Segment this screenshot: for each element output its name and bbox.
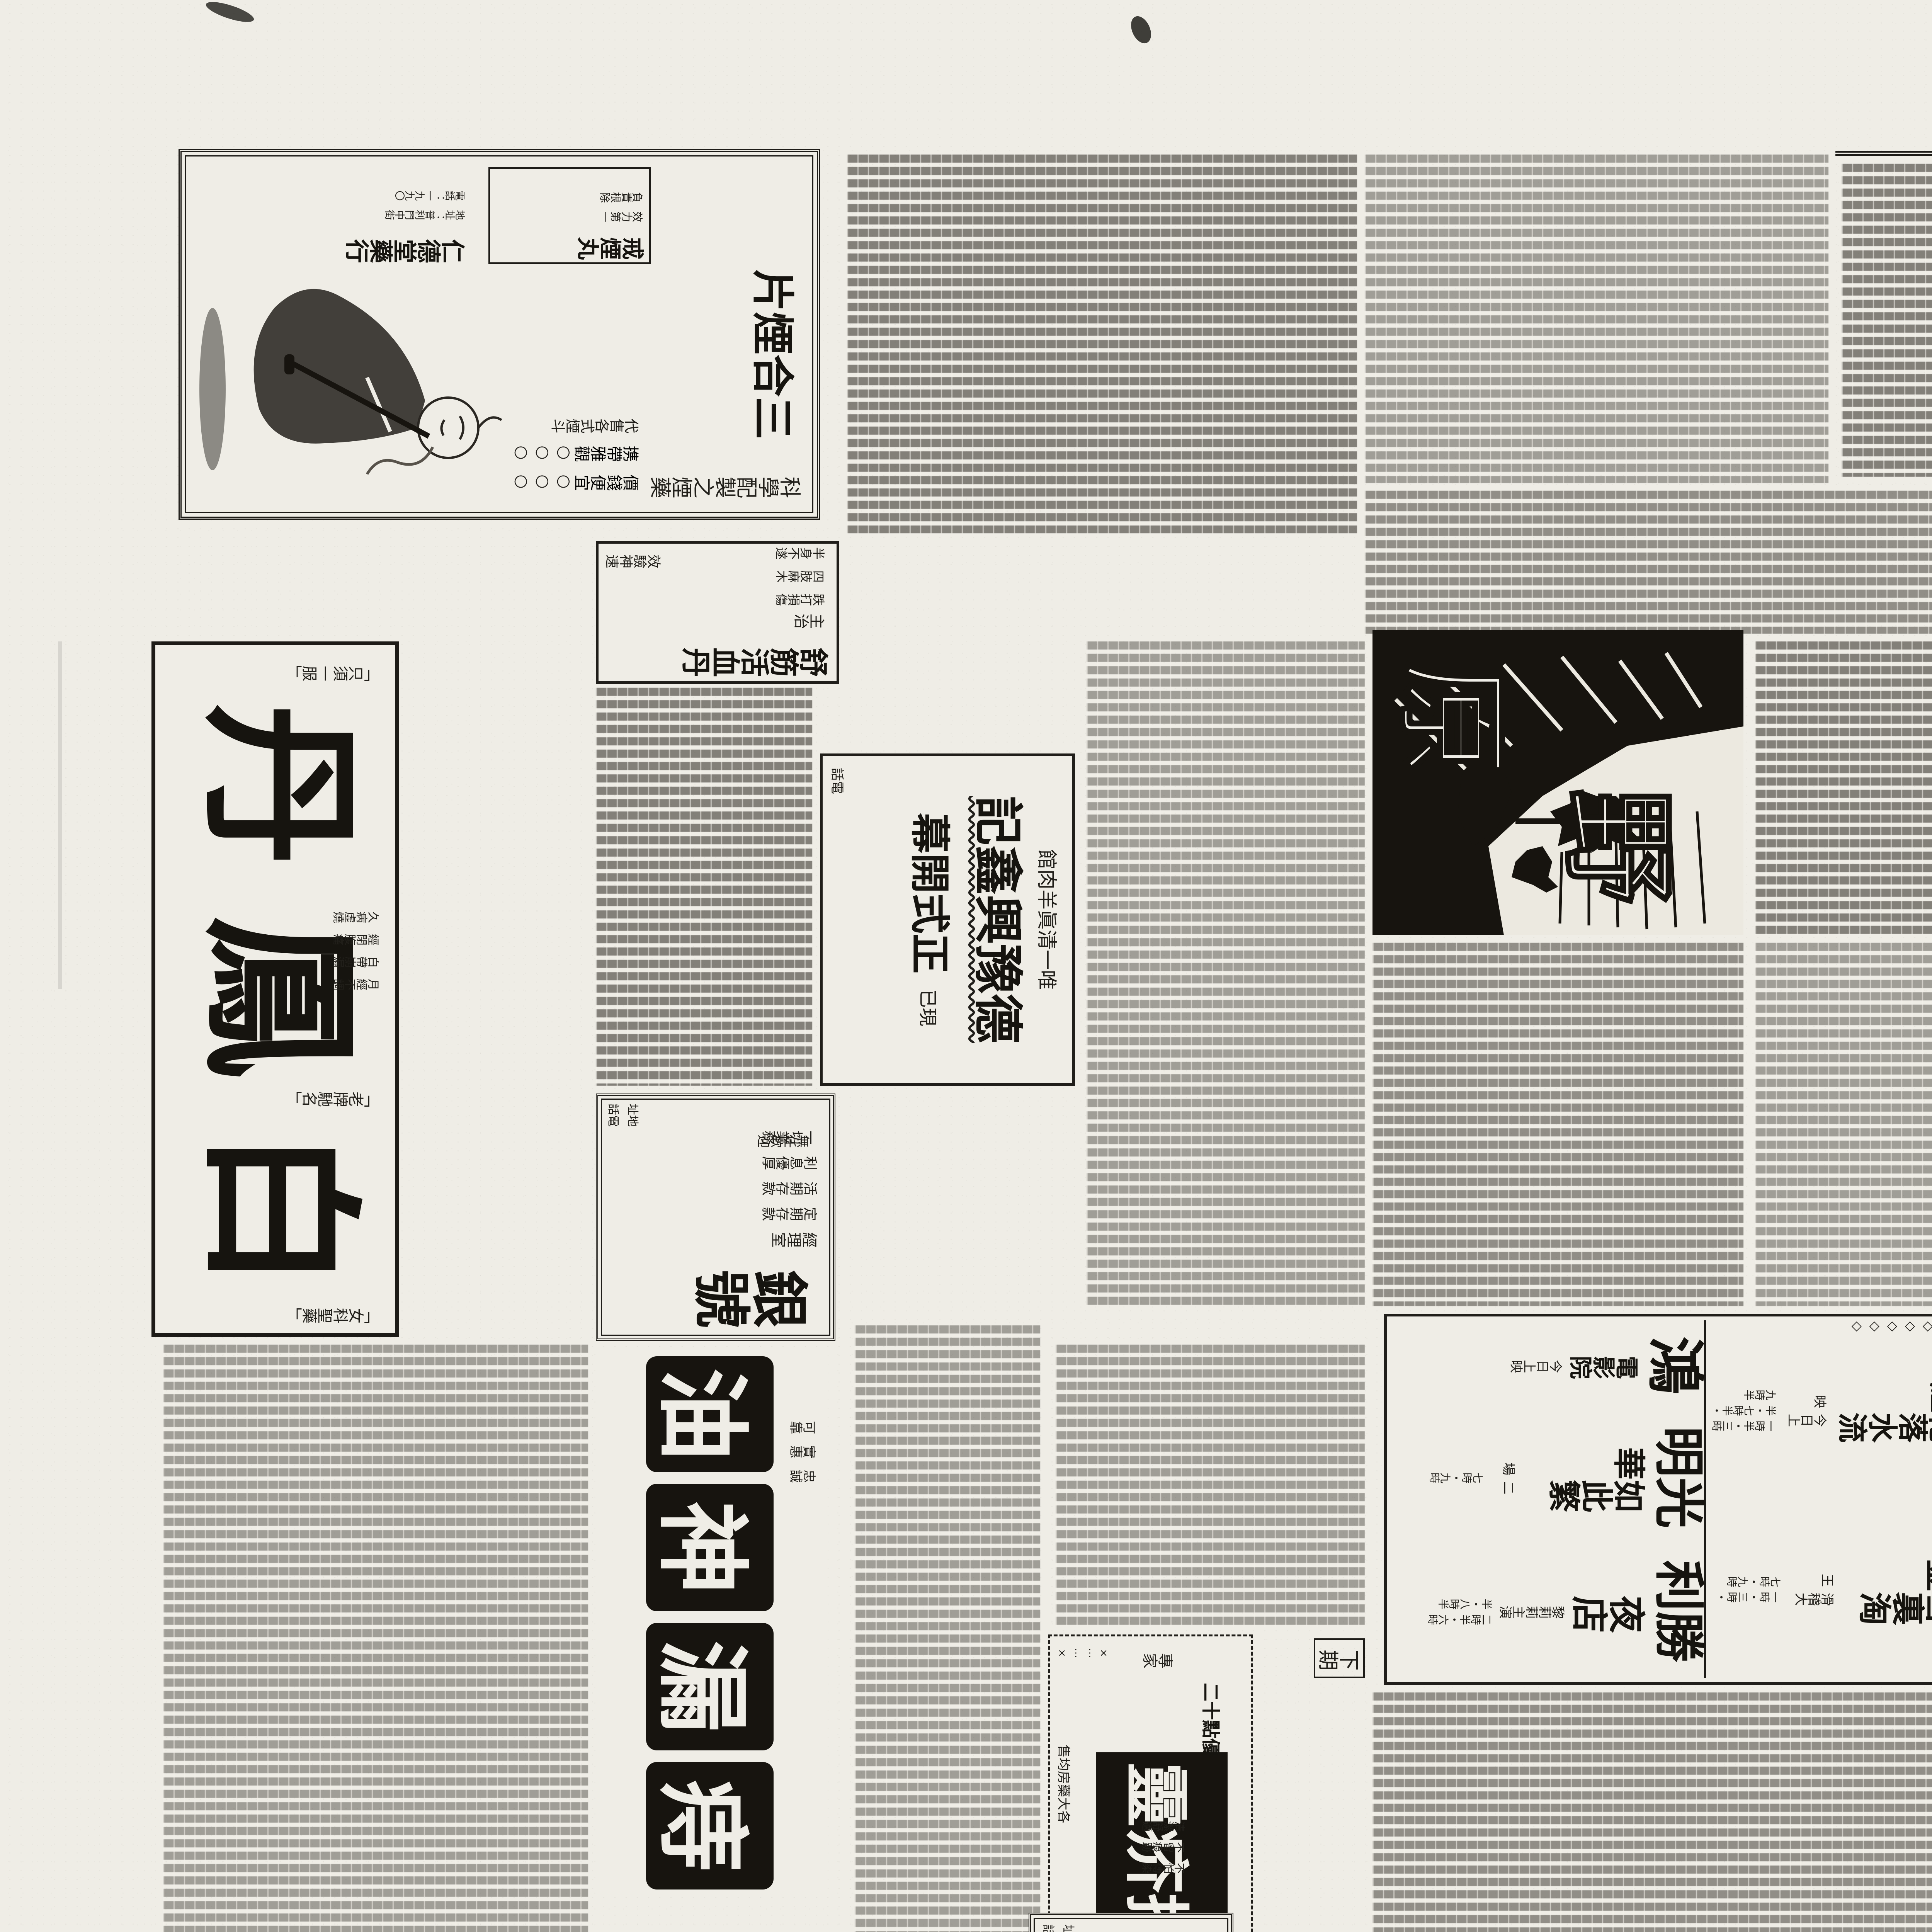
- bank-office: 經理室: [771, 1227, 818, 1250]
- cinema-entry: 鴻 電影院 今日上映: [1403, 1336, 1704, 1394]
- cinema-entry: 勝利 夜店 黎莉莉主演 二時半・六時半・八時半: [1403, 1560, 1704, 1662]
- zhilou-slogan: 忠誠: [790, 1466, 816, 1485]
- seal-char-lou: 漏: [646, 1623, 774, 1750]
- restaurant-tel-label: 電話: [829, 768, 848, 794]
- seal-char-zhi: 痔: [646, 1762, 774, 1889]
- barbershop-ad: 萬國理髮館 設備衛生 房間寬大 電燙火燙 奶油花水 手藝精良 流行摩登 式樣新頴…: [1029, 1913, 1233, 1932]
- restaurant-status: 正式開幕: [910, 813, 950, 974]
- wilderness-char-left: 原: [1384, 661, 1520, 777]
- shujin-symptom: 半身不遂: [776, 544, 825, 561]
- bank-item: 活期存款: [762, 1177, 818, 1197]
- pill-name: 戒煙丸: [577, 235, 645, 258]
- tobacco-slogan: 價錢便宜○○○: [510, 470, 639, 493]
- next-period-label: 下期: [1314, 1638, 1365, 1678]
- film-title: 花落水流紅: [1834, 1379, 1932, 1440]
- barber-tel: 二六三二號：電話: [1040, 1924, 1058, 1932]
- bank-item: 利息優厚: [762, 1151, 818, 1172]
- seal-char-you: 油: [646, 1356, 774, 1472]
- film-note: 黎莉莉主演: [1499, 1602, 1565, 1621]
- store-name: 仁德堂藥行: [345, 237, 465, 261]
- barber-address: 經二路靑年會兩鄰：地址: [1060, 1924, 1078, 1932]
- bank-item: 定期存款: [762, 1202, 818, 1223]
- wilderness-woodcut: 野 原 野 原: [1372, 630, 1743, 935]
- baifengdan-symptom: 經閉腹痛: [333, 930, 379, 947]
- tobacco-kicker: 科學配製之煙藥: [650, 470, 801, 501]
- pill-sub-ad: 戒煙丸 效力第一 負責根除: [488, 167, 651, 264]
- baifengdan-symptom: 月經不調: [333, 975, 379, 992]
- diamond-ornament: ◇◇◇◇◇◇◇◇◇: [1847, 1319, 1932, 1334]
- corner-article: [1835, 151, 1932, 483]
- restaurant-kicker: 唯一清眞羊肉館: [1034, 765, 1063, 1074]
- shujin-name: 舒筋活血丹: [682, 645, 829, 674]
- bank-name: 銀號: [694, 1265, 810, 1323]
- film-note: 今日上映: [1510, 1356, 1563, 1375]
- body-text-texture: [1755, 943, 1932, 1306]
- cinema-entry: 大華 花落水流紅 今日上映 一時半・三時半・七時半・九時半: [1706, 1360, 1932, 1459]
- dotted-ornament: ×⋯⋯×: [1054, 1647, 1109, 1659]
- bank-address-label: 地址: [625, 1104, 642, 1127]
- shujin-pill-ad: 舒筋活血丹 主治 跌打損傷 四肢麻木 半身不遂 效驗神速: [596, 541, 839, 684]
- cinema-entry: 大觀 雪裏淘金 滑稽大王 一時・三時・七時・九時: [1706, 1539, 1932, 1638]
- newspaper-page: 中華民國三十七年七月十日 「平價」新閣能挽回經濟 影劇廣告 敎育 ◇◇◇◇◇◇◇…: [0, 0, 1932, 1932]
- restaurant-status-prefix: 現已: [916, 989, 943, 1026]
- film-title: 如此繁華: [1522, 1445, 1646, 1510]
- film-note: 滑稽大王: [1788, 1570, 1834, 1607]
- body-text-texture: [1372, 1692, 1932, 1932]
- store-sub-ad: 仁德堂藥行 地址：普利門中街 電話：一九九〇: [199, 167, 469, 264]
- tobacco-name: 三合煙片: [751, 269, 794, 439]
- cinema-name: 勝利: [1653, 1560, 1704, 1662]
- film-note: 二場: [1490, 1458, 1515, 1496]
- smoking-figure-illustration: [189, 262, 506, 509]
- show-times: 一時半・三時半・七時半・九時半: [1706, 1386, 1776, 1433]
- cinema-entry: 光明 如此繁華 二場 七時・九時: [1403, 1426, 1704, 1528]
- baifengdan-caption: 「女科聖藥」: [287, 1303, 379, 1325]
- body-text-texture: [1365, 491, 1932, 634]
- film-title: 雪裏淘金: [1841, 1555, 1932, 1622]
- tobacco-slogan: 携帶雅觀○○○: [510, 441, 639, 464]
- zhilou-slogan: 可靠: [790, 1417, 816, 1436]
- baifengdan-caption: 「老牌馳名」: [287, 1087, 379, 1109]
- restaurant-ad: 唯一清眞羊肉館 德豫興鑫記 正式開幕 現已 電話: [820, 753, 1075, 1086]
- pill-note: 負責根除: [600, 189, 643, 204]
- zhilou-oil-ad: 忠誠 實惠 可靠 痔 漏 神 油: [596, 1349, 828, 1897]
- film-note: 今日上映: [1783, 1391, 1827, 1429]
- wilderness-char-right: 野: [1550, 788, 1686, 904]
- saojieling-foot: 各大藥房均售: [1055, 1745, 1074, 1823]
- bank-foot: 無任歡迎: [757, 1131, 810, 1150]
- shujin-symptom: 跌打損傷: [776, 590, 825, 608]
- tobacco-pipes: 代售各式煙斗: [510, 414, 639, 435]
- baifengdan-caption: 「只須一服」: [287, 661, 379, 683]
- body-text-texture: [847, 155, 1357, 533]
- show-times: 七時・九時: [1403, 1469, 1483, 1485]
- baifengdan-symptom: 白帶崩漏: [333, 952, 379, 969]
- store-address: 地址：普利門中街: [385, 207, 465, 221]
- saojieling-ad: 掃疥靈 秀波氏 優點十二 不怕傳染 不留痕跡 清潔舒適 各大藥房均售 專家 ×⋯…: [1048, 1634, 1253, 1932]
- show-times: 一時・三時・七時・九時: [1706, 1573, 1781, 1604]
- body-text-texture: [1087, 641, 1365, 1306]
- show-times: 二時半・六時半・八時半: [1407, 1596, 1492, 1627]
- cinema-name: 鴻: [1646, 1336, 1704, 1394]
- body-text-texture: [1372, 943, 1743, 1306]
- shujin-note: 效驗神速: [605, 550, 661, 570]
- body-text-texture: [1755, 641, 1932, 935]
- cinema-name: 光明: [1653, 1426, 1704, 1528]
- seal-char-shen: 神: [646, 1484, 774, 1611]
- body-text-texture: [163, 1345, 588, 1932]
- baifengdan-ad: 白 鳳 丹 「女科聖藥」 「老牌馳名」 「只須一服」 月經不調 白帶崩漏 經閉腹…: [151, 641, 399, 1337]
- shujin-symptom: 四肢麻木: [776, 567, 825, 585]
- film-title: 夜店: [1572, 1593, 1646, 1630]
- bank-ad: 銀號 經理室 定期存款 活期存款 利息優厚 一切業務 無任歡迎 地址 電話: [596, 1094, 835, 1341]
- body-text-texture: [1365, 155, 1828, 483]
- body-text-texture: [855, 1325, 1040, 1932]
- restaurant-name: 德豫興鑫記: [973, 765, 1022, 1074]
- cinema-suffix: 電影院: [1570, 1354, 1639, 1377]
- tobacco-ad: 科學配製之煙藥 三合煙片 價錢便宜○○○ 携帶雅觀○○○ 代售各式煙斗 戒煙丸 …: [179, 149, 820, 520]
- store-tel: 電話：一九九〇: [395, 188, 465, 202]
- scan-streak: [58, 641, 62, 989]
- shujin-zhuzhi: 主治: [794, 609, 825, 631]
- pill-note: 效力第一: [600, 208, 643, 224]
- zhilou-slogan: 實惠: [790, 1441, 816, 1460]
- bank-tel-label: 電話: [606, 1104, 623, 1127]
- baifengdan-char-bai: 白: [198, 1128, 360, 1291]
- cinema-listings: ◇◇◇◇◇◇◇◇◇ 大觀 雪裏淘金 滑稽大王 一時・三時・七時・九時 大華 花落…: [1384, 1314, 1932, 1685]
- baifengdan-symptom: 久病虛燒: [333, 907, 379, 924]
- woodcut-image: 野 原: [1372, 630, 1743, 935]
